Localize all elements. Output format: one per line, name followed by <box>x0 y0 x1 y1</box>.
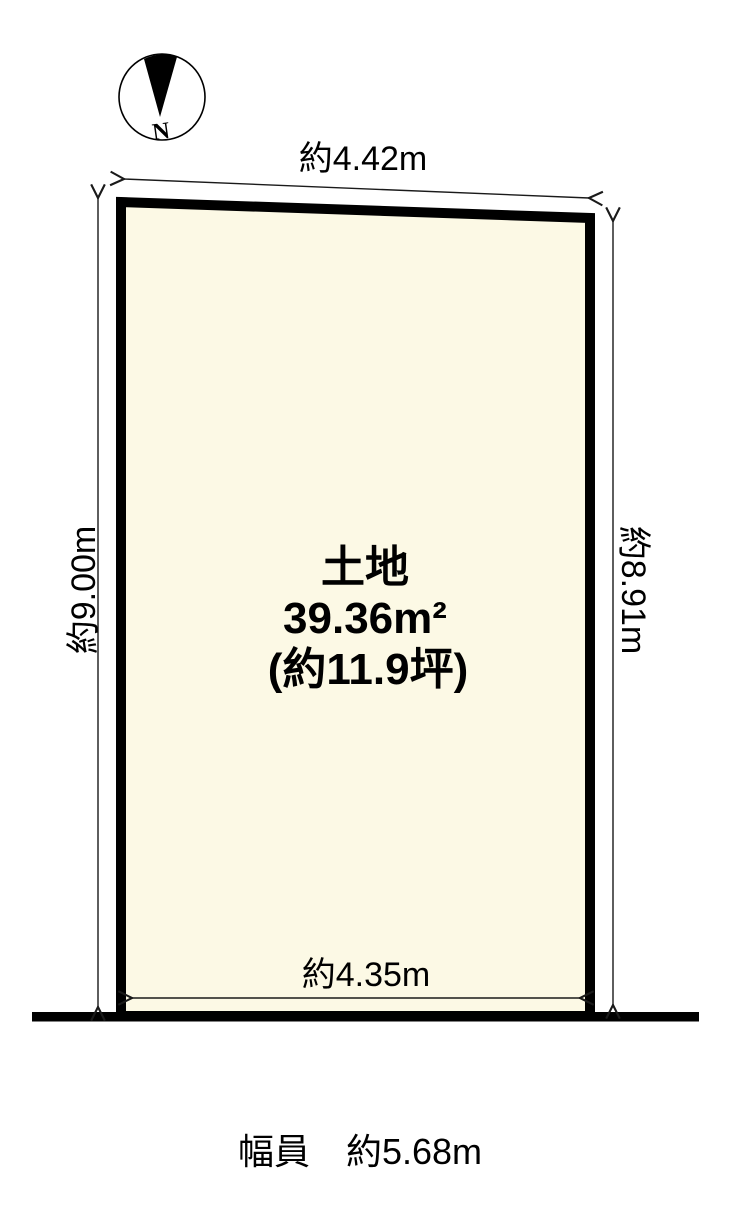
parcel-area-m2: 39.36m² <box>283 594 447 643</box>
road-width-label: 幅員 約5.68m <box>238 1131 482 1172</box>
parcel-title: 土地 <box>321 543 409 592</box>
dimension-label-top: 約4.42m <box>299 140 428 178</box>
dimension-label-bottom: 約4.35m <box>302 956 431 994</box>
land-plot-diagram: N 約4.42m 約9.00m 約8.91m 約4.35m 土地 39.36m²… <box>0 0 732 1225</box>
dimension-label-left: 約9.00m <box>65 526 103 655</box>
dimension-arrow-top <box>124 179 589 198</box>
road-boundary-line <box>32 1012 699 1022</box>
parcel-area-tsubo: (約11.9坪) <box>268 645 469 694</box>
compass-north-icon: N <box>119 54 205 146</box>
diagram-canvas: N 約4.42m 約9.00m 約8.91m 約4.35m 土地 39.36m²… <box>0 0 732 1225</box>
dimension-label-right: 約8.91m <box>614 526 652 655</box>
